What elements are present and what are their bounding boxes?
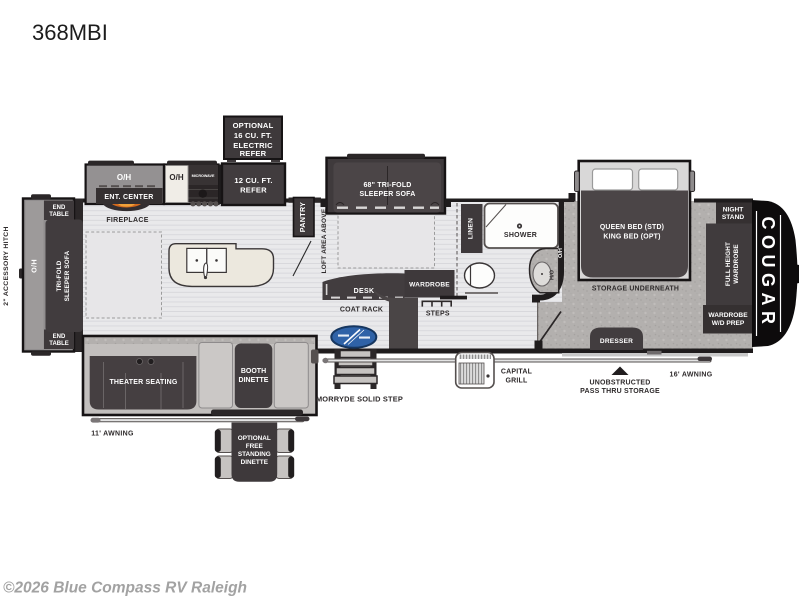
svg-text:OPTIONAL: OPTIONAL (238, 435, 271, 442)
svg-text:DRESSER: DRESSER (600, 338, 633, 345)
svg-text:END: END (53, 205, 66, 211)
svg-text:CAPITAL: CAPITAL (501, 369, 533, 376)
svg-text:STORAGE UNDERNEATH: STORAGE UNDERNEATH (592, 286, 679, 293)
svg-text:ENT. CENTER: ENT. CENTER (104, 194, 153, 201)
svg-text:STANDING: STANDING (238, 451, 271, 458)
svg-text:OPTIONAL: OPTIONAL (233, 121, 274, 130)
svg-text:SLEEPER SOFA: SLEEPER SOFA (64, 250, 71, 301)
svg-text:H/O: H/O (550, 269, 556, 280)
svg-text:BOOTH: BOOTH (241, 368, 266, 375)
svg-text:NIGHT: NIGHT (723, 207, 744, 214)
svg-text:TABLE: TABLE (49, 212, 69, 218)
svg-text:REFER: REFER (240, 186, 267, 195)
svg-text:SHOWER: SHOWER (504, 232, 537, 239)
svg-text:WARDROBE: WARDROBE (733, 244, 740, 284)
svg-text:FIREPLACE: FIREPLACE (106, 217, 148, 224)
svg-text:W/D PREP: W/D PREP (712, 320, 745, 327)
svg-text:©2026 Blue Compass RV Raleigh: ©2026 Blue Compass RV Raleigh (3, 580, 247, 597)
svg-text:O/H: O/H (558, 248, 564, 258)
svg-text:STAND: STAND (722, 214, 744, 221)
svg-text:MICROWAVE: MICROWAVE (192, 174, 215, 178)
svg-text:TRI-FOLD: TRI-FOLD (56, 260, 63, 291)
svg-text:68" TRI-FOLD: 68" TRI-FOLD (363, 182, 411, 189)
svg-text:END: END (53, 334, 66, 340)
svg-text:REFER: REFER (240, 149, 267, 158)
svg-text:O/H: O/H (117, 173, 131, 182)
svg-text:THEATER SEATING: THEATER SEATING (109, 379, 177, 386)
svg-text:LINEN: LINEN (468, 218, 475, 239)
svg-text:2" ACCESSORY HITCH: 2" ACCESSORY HITCH (3, 226, 10, 305)
svg-text:WARDROBE: WARDROBE (708, 312, 748, 319)
svg-text:TABLE: TABLE (49, 341, 69, 347)
svg-text:DESK: DESK (354, 288, 375, 295)
svg-text:FULL HEIGHT: FULL HEIGHT (725, 242, 732, 286)
svg-text:O/H: O/H (169, 173, 183, 182)
svg-text:KING BED (OPT): KING BED (OPT) (603, 234, 660, 241)
svg-text:16 CU. FT.: 16 CU. FT. (234, 131, 272, 140)
svg-text:COUGAR: COUGAR (758, 217, 778, 330)
svg-text:QUEEN BED (STD): QUEEN BED (STD) (600, 224, 664, 231)
svg-text:16' AWNING: 16' AWNING (670, 372, 713, 379)
svg-text:PASS THRU STORAGE: PASS THRU STORAGE (580, 388, 660, 395)
svg-text:STEPS: STEPS (426, 311, 450, 318)
svg-text:11' AWNING: 11' AWNING (91, 431, 134, 438)
svg-text:12 CU. FT.: 12 CU. FT. (234, 176, 272, 185)
svg-text:GRILL: GRILL (506, 378, 529, 385)
svg-text:WARDROBE: WARDROBE (409, 282, 450, 289)
svg-text:DINETTE: DINETTE (239, 377, 269, 384)
svg-text:SLEEPER SOFA: SLEEPER SOFA (359, 191, 415, 198)
svg-text:368MBI: 368MBI (32, 20, 108, 45)
svg-text:DINETTE: DINETTE (241, 459, 269, 466)
svg-text:LOFT AREA ABOVE: LOFT AREA ABOVE (321, 208, 328, 273)
svg-text:O/H: O/H (30, 259, 39, 273)
svg-text:MORRYDE SOLID STEP: MORRYDE SOLID STEP (316, 395, 403, 404)
svg-text:PANTRY: PANTRY (298, 202, 307, 233)
svg-text:UNOBSTRUCTED: UNOBSTRUCTED (589, 380, 650, 387)
svg-text:COAT RACK: COAT RACK (340, 307, 383, 314)
svg-text:FREE: FREE (246, 443, 264, 450)
